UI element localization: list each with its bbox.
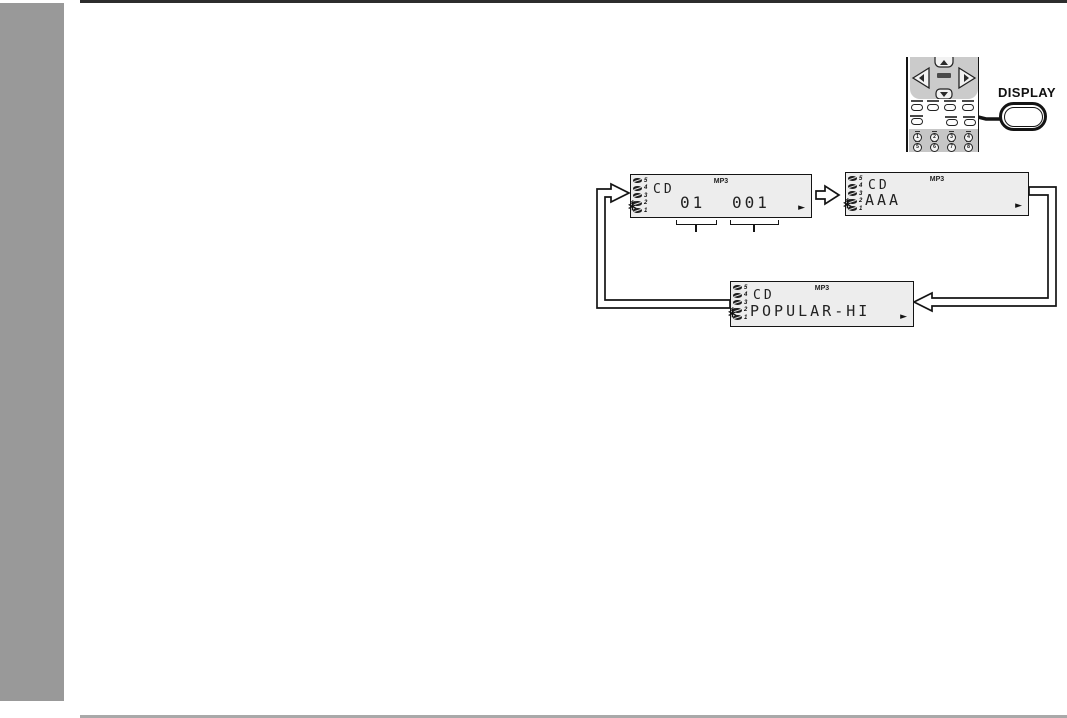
disc-icon — [848, 191, 857, 196]
disc-number: 3 — [644, 193, 647, 199]
disc-icon — [633, 178, 642, 183]
lcd-display-artist: MP3 5 4 3 *2 *1 CD AAA ► — [845, 172, 1029, 216]
lcd-display-album-track: MP3 5 4 3 *2 *1 CD 01 001 ► — [630, 174, 812, 218]
key-letters-label — [915, 141, 920, 143]
button-label — [963, 116, 975, 118]
play-icon: ► — [900, 312, 907, 322]
remote-button — [946, 119, 958, 126]
disc-icon — [733, 293, 742, 298]
next-arrow — [816, 186, 839, 204]
number-keypad: 1 2 3 4 5 6 7 8 — [909, 129, 979, 152]
button-label — [927, 100, 939, 102]
bottom-rule — [80, 715, 1067, 718]
key-7: 7 — [947, 143, 956, 152]
disc-number: 4 — [859, 183, 862, 189]
disc-stack: 5 4 3 *2 *1 — [848, 175, 862, 213]
display-button-inner-ring — [1004, 107, 1043, 127]
remote-display-button — [944, 104, 956, 111]
manual-page: 1 2 3 4 5 6 7 8 DISPLAY MP3 5 4 3 *2 *1 … — [0, 0, 1067, 718]
disc-number: 4 — [644, 185, 647, 191]
display-button-callout — [999, 102, 1047, 131]
key-letters-label — [932, 141, 937, 143]
disc-row: 5 — [733, 284, 747, 292]
disc-number: 5 — [859, 176, 862, 182]
disc-number: 2 — [644, 200, 647, 206]
disc-number: 5 — [644, 178, 647, 184]
disc-row: *1 — [733, 314, 747, 322]
track-number-bracket-tick — [753, 225, 755, 232]
disc-icon — [633, 208, 642, 213]
play-icon: ► — [1015, 201, 1022, 211]
disc-icon — [848, 199, 857, 204]
key-5: 5 — [913, 143, 922, 152]
disc-row: 4 — [633, 185, 647, 193]
disc-icon — [848, 184, 857, 189]
disc-row: 5 — [848, 175, 862, 183]
disc-number: 3 — [859, 191, 862, 197]
enter-label — [937, 73, 951, 78]
disc-row: 4 — [848, 183, 862, 191]
disc-row: *1 — [848, 205, 862, 213]
id3-text: AAA — [865, 191, 901, 209]
button-label — [945, 116, 957, 118]
disc-stack: 5 4 3 *2 *1 — [733, 284, 747, 322]
disc-icon — [733, 308, 742, 313]
key-letters-label — [949, 131, 954, 133]
key-letters-label — [915, 131, 920, 133]
remote-control: 1 2 3 4 5 6 7 8 — [906, 57, 979, 152]
track-number: 001 — [732, 193, 770, 212]
button-label — [944, 100, 956, 102]
disc-icon — [848, 176, 857, 181]
disc-icon — [733, 285, 742, 290]
button-label — [910, 115, 923, 117]
display-button-label: DISPLAY — [998, 85, 1056, 100]
key-6: 6 — [930, 143, 939, 152]
page-margin-bar — [0, 3, 64, 701]
source-label: CD — [753, 288, 775, 303]
top-rule — [80, 0, 1067, 3]
disc-icon — [633, 186, 642, 191]
disc-row: 4 — [733, 292, 747, 300]
disc-icon — [848, 206, 857, 211]
key-letters-label — [966, 141, 971, 143]
key-letters-label — [966, 131, 971, 133]
disc-row: *1 — [633, 207, 647, 215]
disc-icon — [633, 201, 642, 206]
disc-row: 5 — [633, 177, 647, 185]
disc-number: 2 — [744, 307, 747, 313]
nav-cluster — [910, 57, 978, 99]
disc-number: 3 — [744, 300, 747, 306]
disc-stack: 5 4 3 *2 *1 — [633, 177, 647, 215]
disc-number: 2 — [859, 198, 862, 204]
disc-icon — [733, 315, 742, 320]
source-label: CD — [653, 182, 675, 197]
key-letters-label — [932, 131, 937, 133]
remote-button — [964, 119, 976, 126]
disc-icon — [633, 193, 642, 198]
album-number-bracket-tick — [695, 225, 697, 232]
button-label — [962, 100, 974, 102]
remote-button — [911, 104, 923, 111]
disc-icon — [733, 300, 742, 305]
play-icon: ► — [798, 203, 805, 213]
key-letters-label — [949, 141, 954, 143]
lcd-display-title: MP3 5 4 3 *2 *1 CD POPULAR-HI ► — [730, 281, 914, 327]
remote-button — [962, 104, 974, 111]
disc-number: 4 — [744, 292, 747, 298]
disc-number: 1 — [859, 206, 862, 212]
disc-number: 1 — [744, 315, 747, 321]
disc-number: 5 — [744, 285, 747, 291]
album-number: 01 — [680, 193, 705, 212]
remote-button — [911, 118, 923, 125]
button-label — [911, 100, 923, 102]
id3-text: POPULAR-HI — [750, 302, 870, 320]
key-8: 8 — [964, 143, 973, 152]
disc-number: 1 — [644, 208, 647, 214]
remote-button — [927, 104, 939, 111]
